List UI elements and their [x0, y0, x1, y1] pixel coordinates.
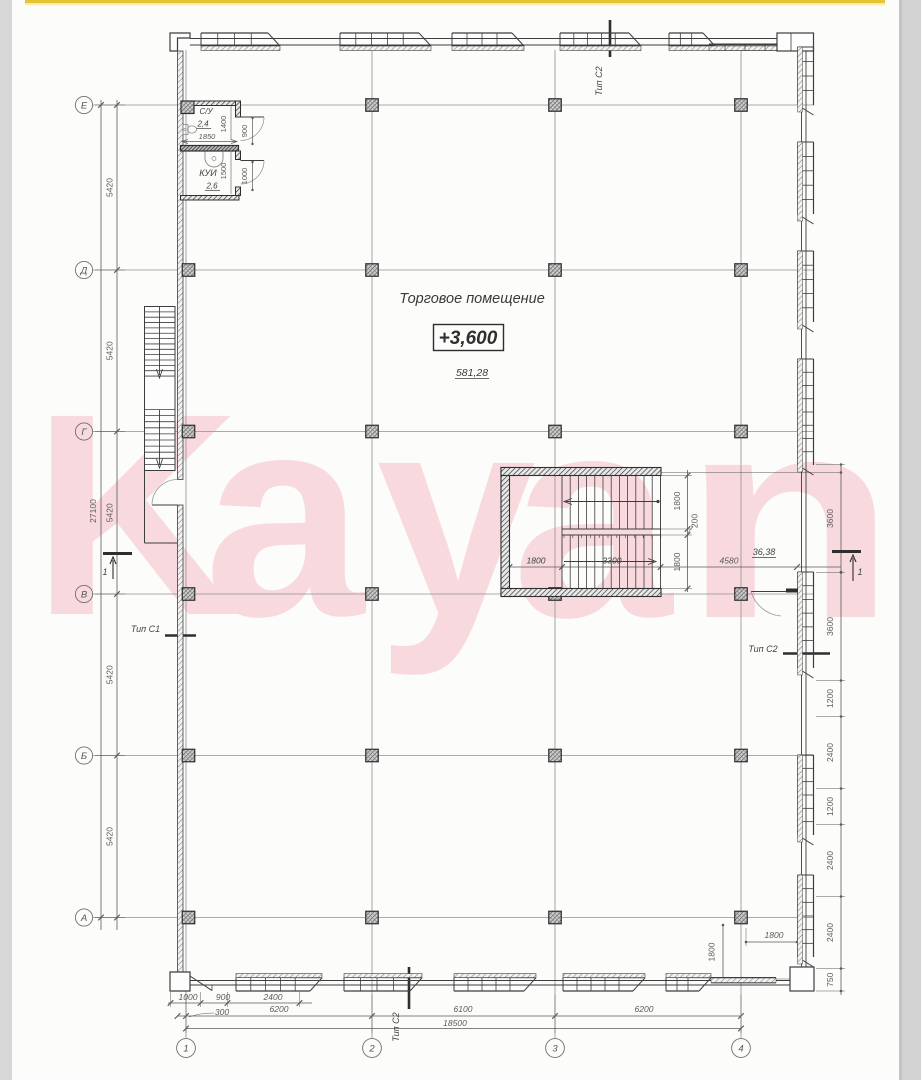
svg-text:Г: Г	[81, 427, 87, 438]
svg-text:1000: 1000	[179, 992, 198, 1002]
svg-text:750: 750	[825, 972, 835, 986]
svg-text:1800: 1800	[527, 556, 546, 566]
svg-text:900: 900	[216, 992, 230, 1002]
svg-text:a: a	[204, 355, 366, 677]
svg-text:3600: 3600	[825, 617, 835, 636]
svg-text:КУИ: КУИ	[199, 168, 217, 178]
svg-text:3: 3	[552, 1044, 558, 1055]
svg-text:2: 2	[368, 1044, 375, 1055]
svg-text:Е: Е	[81, 100, 88, 111]
svg-text:А: А	[80, 913, 87, 924]
svg-text:1500: 1500	[219, 163, 228, 180]
svg-text:2,6: 2,6	[205, 182, 218, 191]
svg-text:n: n	[682, 357, 897, 679]
svg-text:5420: 5420	[105, 178, 115, 197]
svg-text:1800: 1800	[672, 552, 682, 571]
svg-text:Торговое помещение: Торговое помещение	[399, 291, 545, 307]
svg-text:36,38: 36,38	[753, 547, 776, 557]
svg-text:18500: 18500	[443, 1018, 467, 1028]
svg-text:2,4: 2,4	[196, 120, 209, 129]
svg-text:Б: Б	[81, 751, 87, 762]
svg-text:1800: 1800	[707, 942, 717, 961]
svg-text:1800: 1800	[672, 491, 682, 510]
svg-text:2400: 2400	[825, 743, 835, 762]
svg-text:6200: 6200	[635, 1004, 654, 1014]
svg-text:5420: 5420	[105, 665, 115, 684]
svg-text:С/У: С/У	[199, 107, 213, 116]
svg-text:200: 200	[690, 514, 700, 528]
svg-text:В: В	[81, 589, 88, 600]
svg-text:5420: 5420	[105, 341, 115, 360]
svg-text:1850: 1850	[199, 132, 217, 141]
svg-text:2400: 2400	[825, 923, 835, 942]
svg-text:Тип С1: Тип С1	[131, 624, 160, 634]
svg-text:1000: 1000	[240, 168, 249, 185]
svg-text:6200: 6200	[270, 1004, 289, 1014]
svg-text:1800: 1800	[765, 930, 784, 940]
svg-text:1: 1	[183, 1044, 188, 1055]
svg-text:1: 1	[102, 567, 107, 577]
svg-text:1: 1	[857, 567, 862, 577]
svg-text:4580: 4580	[720, 556, 739, 566]
svg-text:2400: 2400	[263, 992, 283, 1002]
svg-text:Тип С2: Тип С2	[391, 1012, 401, 1041]
svg-text:581,28: 581,28	[456, 367, 488, 379]
svg-text:a: a	[512, 356, 674, 678]
svg-text:Д: Д	[80, 265, 88, 276]
svg-text:3600: 3600	[825, 509, 835, 528]
svg-text:+3,600: +3,600	[439, 328, 498, 349]
svg-text:1200: 1200	[825, 797, 835, 816]
svg-text:5420: 5420	[105, 503, 115, 522]
svg-text:Тип С2: Тип С2	[594, 66, 604, 95]
svg-text:Тип С2: Тип С2	[748, 644, 777, 654]
svg-text:5420: 5420	[105, 827, 115, 846]
svg-text:6100: 6100	[454, 1004, 473, 1014]
svg-text:27100: 27100	[88, 499, 98, 523]
svg-text:1400: 1400	[219, 116, 228, 133]
svg-text:900: 900	[240, 125, 249, 138]
svg-text:3300: 3300	[603, 556, 622, 566]
svg-text:300: 300	[215, 1007, 229, 1017]
svg-text:4: 4	[738, 1044, 743, 1055]
svg-text:2400: 2400	[825, 851, 835, 870]
svg-text:1200: 1200	[825, 689, 835, 708]
